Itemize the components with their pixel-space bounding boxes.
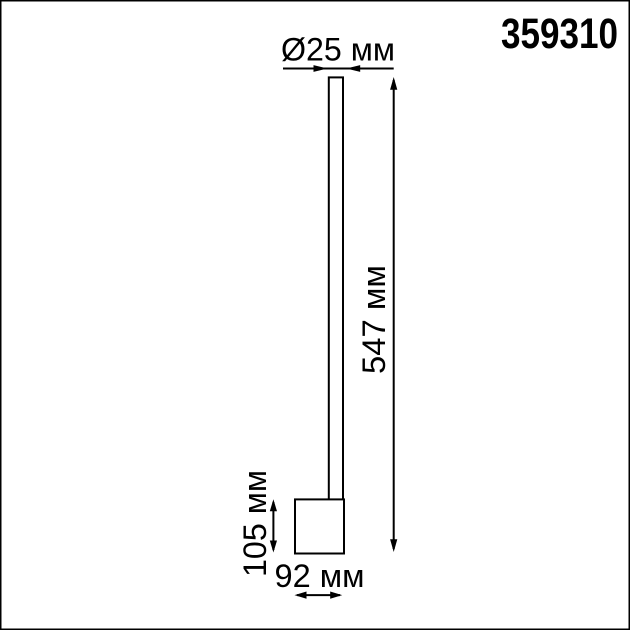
svg-text:Ø25 мм: Ø25 мм (281, 32, 395, 68)
svg-text:105 мм: 105 мм (237, 470, 273, 577)
svg-text:92 мм: 92 мм (275, 558, 365, 594)
svg-text:359310: 359310 (501, 10, 618, 58)
svg-text:547 мм: 547 мм (356, 265, 392, 374)
